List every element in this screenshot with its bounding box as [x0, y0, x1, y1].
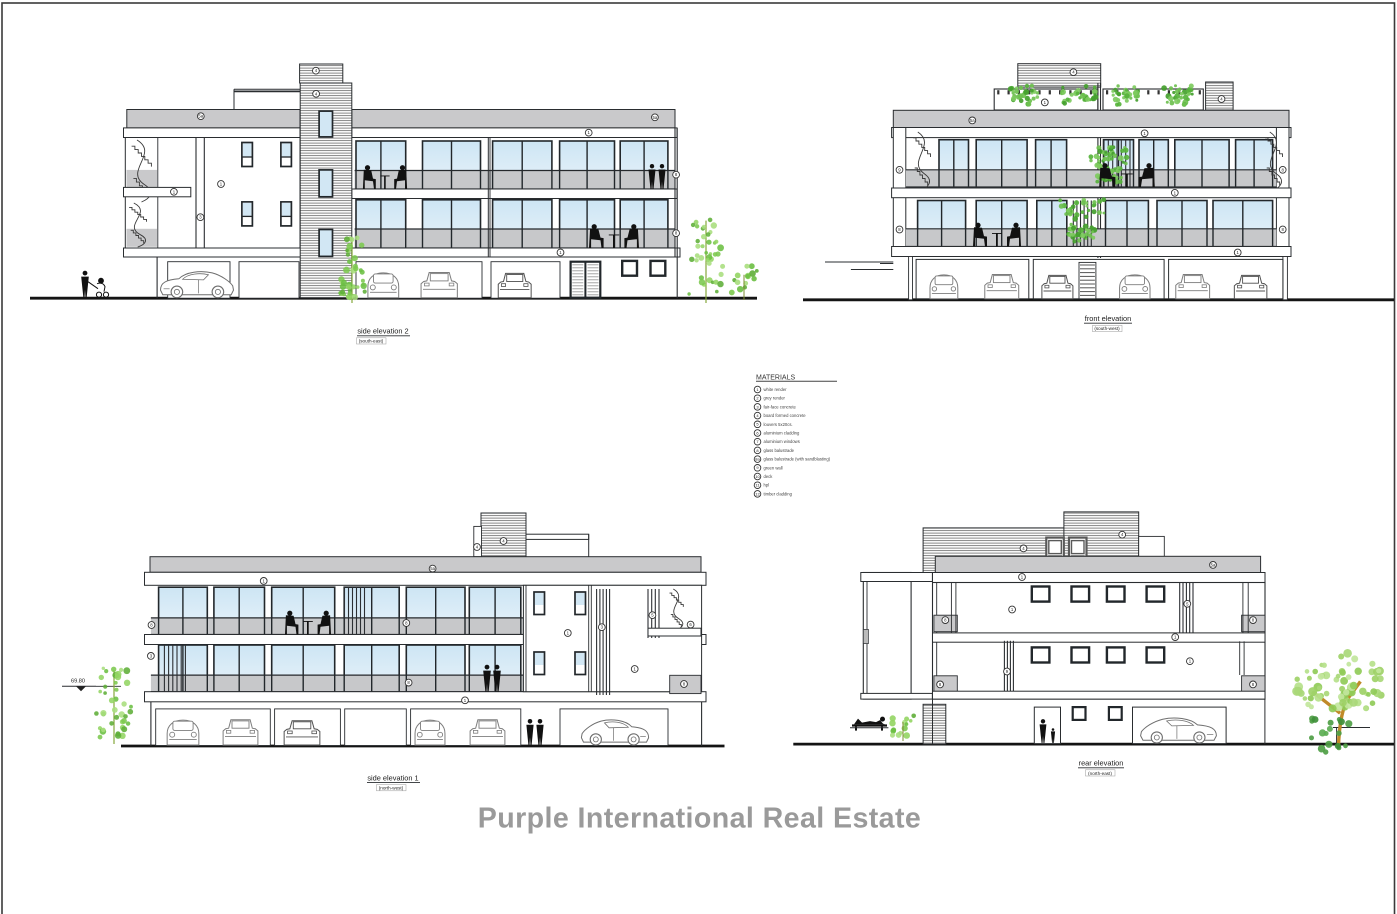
svg-text:aluminium cladding: aluminium cladding — [764, 431, 801, 436]
svg-text:(south-west): (south-west) — [1094, 326, 1120, 331]
svg-text:grey render: grey render — [764, 396, 786, 401]
svg-text:glass balustrade (with sandbla: glass balustrade (with sandblasting) — [764, 457, 831, 462]
svg-text:side elevation 2: side elevation 2 — [357, 327, 408, 336]
svg-text:louvers 5x20cs.: louvers 5x20cs. — [764, 422, 793, 427]
svg-text:timber cladding: timber cladding — [764, 491, 793, 496]
svg-text:white render: white render — [764, 387, 788, 392]
svg-text:(north-east): (north-east) — [1088, 771, 1112, 776]
svg-text:5a: 5a — [970, 118, 975, 123]
svg-text:5a: 5a — [1211, 562, 1216, 567]
svg-text:deck: deck — [764, 474, 774, 479]
svg-text:rear elevation: rear elevation — [1079, 759, 1124, 768]
svg-text:(north-west): (north-west) — [379, 785, 404, 790]
svg-text:aluminium windows: aluminium windows — [764, 439, 800, 444]
svg-text:glass balustrade: glass balustrade — [764, 448, 795, 453]
svg-text:12: 12 — [755, 491, 760, 496]
svg-text:5a: 5a — [430, 566, 435, 571]
svg-text:MATERIALS: MATERIALS — [756, 375, 795, 382]
svg-text:69.80: 69.80 — [71, 679, 85, 685]
svg-text:(south-east): (south-east) — [359, 339, 384, 344]
svg-text:5a: 5a — [198, 114, 203, 119]
svg-text:side elevation 1: side elevation 1 — [367, 773, 418, 782]
svg-text:Purple International Real Esta: Purple International Real Estate — [478, 803, 921, 835]
svg-text:hpl: hpl — [764, 483, 770, 488]
svg-text:10: 10 — [755, 474, 760, 479]
svg-text:fair-face concrete: fair-face concrete — [764, 404, 797, 409]
svg-text:green wall: green wall — [764, 465, 783, 470]
svg-text:front elevation: front elevation — [1085, 314, 1131, 323]
svg-text:board formed concrete: board formed concrete — [764, 413, 807, 418]
svg-text:5a: 5a — [653, 115, 658, 120]
svg-text:8a: 8a — [755, 457, 760, 462]
